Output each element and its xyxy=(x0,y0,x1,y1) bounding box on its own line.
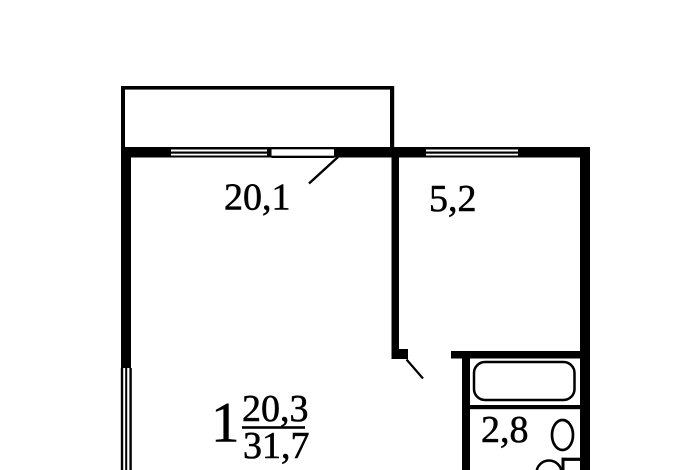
svg-text:2,8: 2,8 xyxy=(481,409,529,451)
svg-text:31,7: 31,7 xyxy=(243,425,310,467)
svg-text:20,3: 20,3 xyxy=(242,388,309,430)
svg-text:5,2: 5,2 xyxy=(429,178,477,220)
svg-text:1: 1 xyxy=(211,392,240,455)
svg-text:20,1: 20,1 xyxy=(224,177,291,219)
